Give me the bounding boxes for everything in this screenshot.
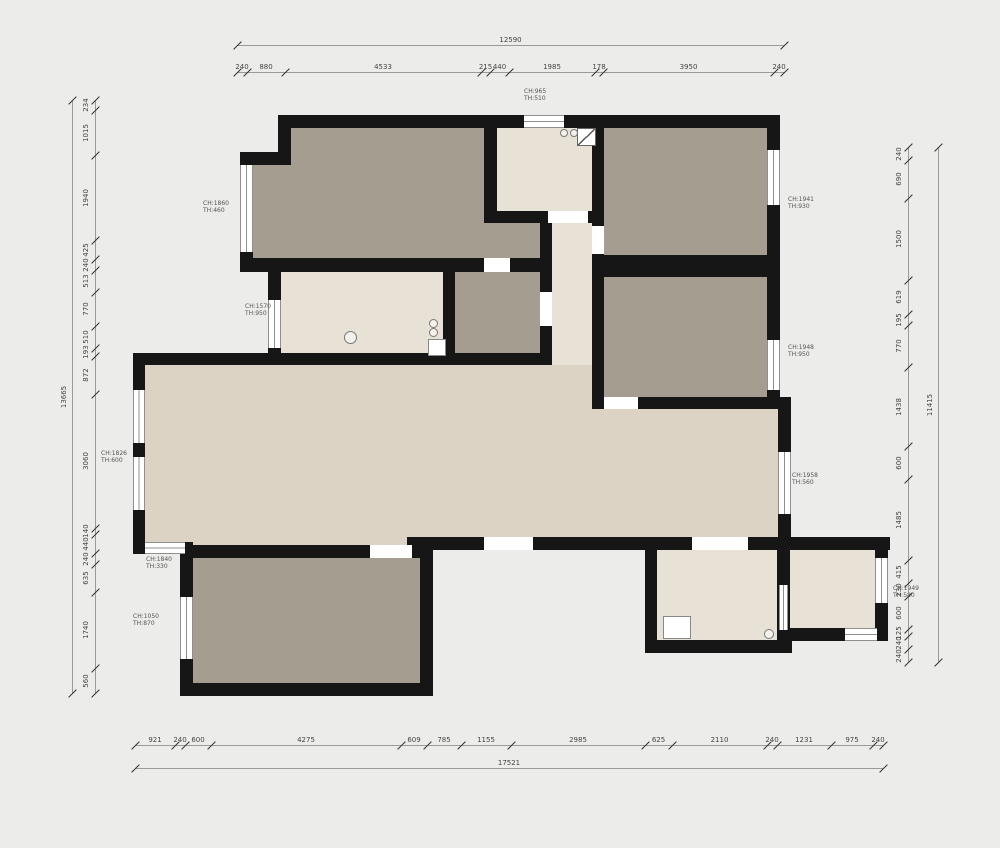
room-dining-area — [548, 409, 778, 537]
window-size-label: CH:1948TH:950 — [788, 344, 814, 358]
window-size-label: CH:1840TH:330 — [146, 556, 172, 570]
dimension-value: 240 — [173, 736, 186, 744]
window — [133, 390, 145, 443]
dimension-value: 1155 — [477, 736, 495, 744]
window-ch-value: CH:1958 — [792, 472, 818, 479]
wall — [240, 258, 484, 272]
dimension-value: 1940 — [82, 189, 90, 207]
door-opening — [540, 292, 552, 326]
wall — [180, 683, 433, 696]
dimension-value: 440 — [493, 63, 506, 71]
wall — [420, 545, 433, 696]
window — [145, 542, 185, 554]
dimension-value: 240 — [765, 736, 778, 744]
dimension-value: 3950 — [680, 63, 698, 71]
window — [778, 452, 791, 514]
door-opening — [604, 397, 638, 409]
room-bathroom — [443, 272, 540, 353]
door-opening — [370, 545, 412, 558]
window-ch-value: CH:1860 — [203, 200, 229, 207]
dimension-line — [908, 147, 909, 662]
room-bedroom-top-left-ext — [484, 223, 540, 258]
window-size-label: CH:965TH:510 — [524, 88, 546, 102]
wall — [645, 537, 657, 653]
window-th-value: TH:510 — [524, 95, 546, 102]
dimension-value: 975 — [845, 736, 858, 744]
dimension-value: 240 — [871, 736, 884, 744]
door-opening — [548, 211, 588, 223]
room-bedroom-top-right — [604, 128, 767, 255]
dimension-value: 11415 — [926, 393, 934, 415]
window-th-value: TH:950 — [788, 351, 814, 358]
dimension-value: 230 — [895, 583, 903, 596]
wall — [645, 640, 792, 653]
room-bedroom-top-left-bay — [252, 165, 291, 258]
window — [875, 558, 888, 603]
dimension-value: 2985 — [569, 736, 587, 744]
window-ch-value: CH:1840 — [146, 556, 172, 563]
dimension-value: 513 — [82, 274, 90, 287]
dimension-value: 785 — [437, 736, 450, 744]
door-opening — [484, 258, 510, 272]
door-detail-icon — [570, 129, 578, 137]
room-kitchen — [281, 272, 443, 353]
dimension-value: 240 — [895, 147, 903, 160]
window — [524, 115, 564, 128]
entry-door-leaf — [577, 128, 596, 146]
dimension-value: 240 — [82, 552, 90, 565]
dimension-value: 193 — [82, 345, 90, 358]
window-size-label: CH:1570TH:950 — [245, 303, 271, 317]
dimension-value: 560 — [82, 674, 90, 687]
window-th-value: TH:560 — [792, 479, 818, 486]
window-th-value: TH:950 — [245, 310, 271, 317]
window-ch-value: CH:965 — [524, 88, 546, 95]
dimension-line — [95, 100, 96, 693]
dimension-value: 1485 — [895, 511, 903, 529]
drain-icon — [764, 629, 774, 639]
room-room-bottom-right — [790, 550, 875, 628]
dimension-value: 921 — [148, 736, 161, 744]
dimension-value: 770 — [82, 302, 90, 315]
door-opening — [484, 537, 533, 550]
dimension-value: 510 — [82, 330, 90, 343]
dimension-value: 240 — [82, 258, 90, 271]
fixture-box — [663, 616, 691, 639]
kitchen-counter — [428, 339, 446, 356]
dimension-value: 415 — [895, 565, 903, 578]
window-ch-value: CH:1948 — [788, 344, 814, 351]
wall — [592, 255, 780, 277]
dimension-line — [938, 147, 939, 662]
window-th-value: TH:600 — [101, 457, 127, 464]
door-opening — [592, 226, 604, 254]
dimension-value: 215 — [479, 63, 492, 71]
dimension-value: 872 — [82, 368, 90, 381]
dimension-value: 3060 — [82, 452, 90, 470]
window-size-label: CH:1958TH:560 — [792, 472, 818, 486]
window-size-label: CH:1860TH:460 — [203, 200, 229, 214]
dimension-value: 1231 — [795, 736, 813, 744]
dimension-value: 600 — [191, 736, 204, 744]
dimension-value: 4275 — [297, 736, 315, 744]
dimension-value: 880 — [259, 63, 272, 71]
dimension-line — [135, 768, 883, 769]
dimension-value: 140 — [82, 524, 90, 537]
floor-plan-drawing: CH:1860TH:460CH:1570TH:950CH:1826TH:600C… — [0, 0, 1000, 848]
window-ch-value: CH:1826 — [101, 450, 127, 457]
stove-burner-icon — [429, 319, 438, 328]
dimension-value: 195 — [895, 313, 903, 326]
dimension-value: 1500 — [895, 230, 903, 248]
dimension-value: 17521 — [498, 759, 520, 767]
dimension-value: 1438 — [895, 398, 903, 416]
dimension-line — [72, 100, 73, 693]
dimension-value: 690 — [895, 172, 903, 185]
window — [779, 585, 788, 630]
dimension-value: 625 — [652, 736, 665, 744]
window — [180, 597, 193, 659]
dimension-value: 240 — [895, 649, 903, 662]
wall — [240, 152, 291, 165]
dimension-value: 425 — [82, 243, 90, 256]
dimension-value: 240 — [235, 63, 248, 71]
kitchen-sink-icon — [344, 331, 357, 344]
room-living-room — [145, 365, 548, 545]
dimension-value: 240 — [895, 636, 903, 649]
dimension-value: 619 — [895, 290, 903, 303]
dimension-value: 234 — [82, 98, 90, 111]
dimension-value: 12590 — [499, 36, 521, 44]
room-bedroom-right — [604, 277, 767, 397]
floor-plan-canvas: CH:1860TH:460CH:1570TH:950CH:1826TH:600C… — [0, 0, 1000, 848]
window — [767, 150, 780, 205]
dimension-value: 770 — [895, 339, 903, 352]
dimension-value: 4533 — [374, 63, 392, 71]
window-ch-value: CH:1570 — [245, 303, 271, 310]
window-th-value: TH:460 — [203, 207, 229, 214]
wall — [133, 353, 552, 365]
window — [767, 340, 780, 390]
door-detail-icon — [560, 129, 568, 137]
dimension-value: 600 — [895, 456, 903, 469]
window — [845, 628, 877, 641]
room-bedroom-top-left — [291, 128, 484, 258]
dimension-value: 1740 — [82, 621, 90, 639]
stove-burner-icon — [429, 328, 438, 337]
dimension-value: 1985 — [543, 63, 561, 71]
dimension-value: 2110 — [711, 736, 729, 744]
door-opening — [692, 537, 748, 550]
wall — [592, 254, 604, 409]
dimension-value: 240 — [772, 63, 785, 71]
wall — [133, 353, 145, 554]
dimension-value: 600 — [895, 606, 903, 619]
wall — [484, 211, 548, 223]
window-th-value: TH:870 — [133, 620, 159, 627]
window — [240, 165, 253, 252]
dimension-line — [237, 45, 784, 46]
window-th-value: TH:930 — [788, 203, 814, 210]
window-size-label: CH:1050TH:870 — [133, 613, 159, 627]
dimension-value: 609 — [407, 736, 420, 744]
dimension-value: 1015 — [82, 124, 90, 142]
window-ch-value: CH:1050 — [133, 613, 159, 620]
window-size-label: CH:1941TH:930 — [788, 196, 814, 210]
dimension-value: 635 — [82, 571, 90, 584]
window-ch-value: CH:1941 — [788, 196, 814, 203]
window-th-value: TH:330 — [146, 563, 172, 570]
wall — [484, 128, 497, 223]
dimension-value: 440 — [82, 537, 90, 550]
window-size-label: CH:1826TH:600 — [101, 450, 127, 464]
window — [133, 457, 145, 510]
dimension-value: 13665 — [60, 385, 68, 407]
room-room-bottom-left — [193, 558, 420, 683]
